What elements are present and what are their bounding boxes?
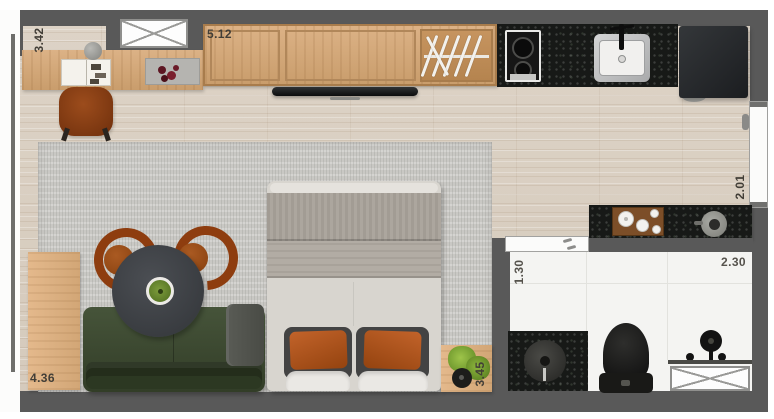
dimension-label-bed-side: 3.45 [473,354,487,394]
throw-blanket [226,304,264,366]
pillow-rust-left [289,330,347,370]
entry-door-cap-top [750,102,767,107]
door-handle-2 [567,245,576,250]
vanity-faucet [543,368,546,381]
cooktop [505,30,541,82]
tile-line-h1 [510,283,752,284]
tv-stand [330,97,360,100]
bed-blanket-textured [267,193,441,241]
wall-right-upper [750,10,768,103]
pillow-white-right [358,371,428,391]
sugar-pot [636,219,649,232]
tile-line-v2 [667,252,668,360]
open-book [61,59,111,86]
book-mark-1 [91,64,101,70]
bathroom-sliding-door [505,236,589,252]
wardrobe-panel-2 [285,30,416,81]
wardrobe-hanger-bay [420,29,493,82]
cup-2 [652,225,661,234]
sofa-front-roll [86,362,262,389]
berry-1 [158,66,166,74]
book-mark-2 [95,73,106,78]
sideboard [28,252,80,390]
pillow-white-left [286,371,350,391]
dimension-label-desk-side: 3.42 [32,20,46,60]
dimension-label-top-wall: 5.12 [207,27,247,41]
glass-wall-pane [11,34,15,372]
dimension-label-bathroom-width: 2.30 [702,255,746,269]
plant-pot-highlight [459,375,464,380]
entry-door-handle [742,114,749,130]
shower-head-center [708,338,714,344]
vanity-drain [540,356,550,366]
wardrobe [203,24,497,86]
hanger-rod [424,55,489,58]
bed-blanket-smooth [267,241,441,278]
toilet-button [621,380,630,386]
pillow-rust-right [363,330,421,370]
door-handle-1 [563,238,572,243]
decor-sphere [84,42,102,60]
burner-large [512,37,534,59]
bathroom-window [670,366,750,391]
book-spine [86,60,87,85]
tv [272,87,418,96]
table-plant-center [158,289,163,294]
bar-faucet [694,221,703,225]
shower-threshold [668,360,752,364]
wall-right-lower [750,206,768,393]
wall-bottom [14,391,768,412]
refrigerator [679,26,748,98]
teapot-lid [624,217,628,221]
cup-1 [650,209,659,218]
glass-wall-frame [0,10,20,412]
berry-2 [167,71,176,80]
sink-drain [618,55,626,63]
decor-tray [145,58,200,85]
berry-3 [161,75,168,82]
berry-4 [173,65,179,71]
book-mark-3 [90,79,99,84]
dimension-label-entry-side: 2.01 [733,167,747,207]
dimension-label-living-side: 4.36 [30,371,74,385]
entry-door-cap-bottom [750,202,767,207]
entry-door [749,101,768,208]
top-window [120,19,188,48]
cooktop-controls [510,74,536,80]
floor-plan: 3.42 5.12 2.01 1.30 2.30 4.36 3.45 [0,0,774,419]
bar-sink-drain [709,219,720,230]
bed-top-fold [270,183,438,193]
bed-duvet-seam [353,282,354,326]
dimension-label-bathroom-depth: 1.30 [512,252,526,292]
